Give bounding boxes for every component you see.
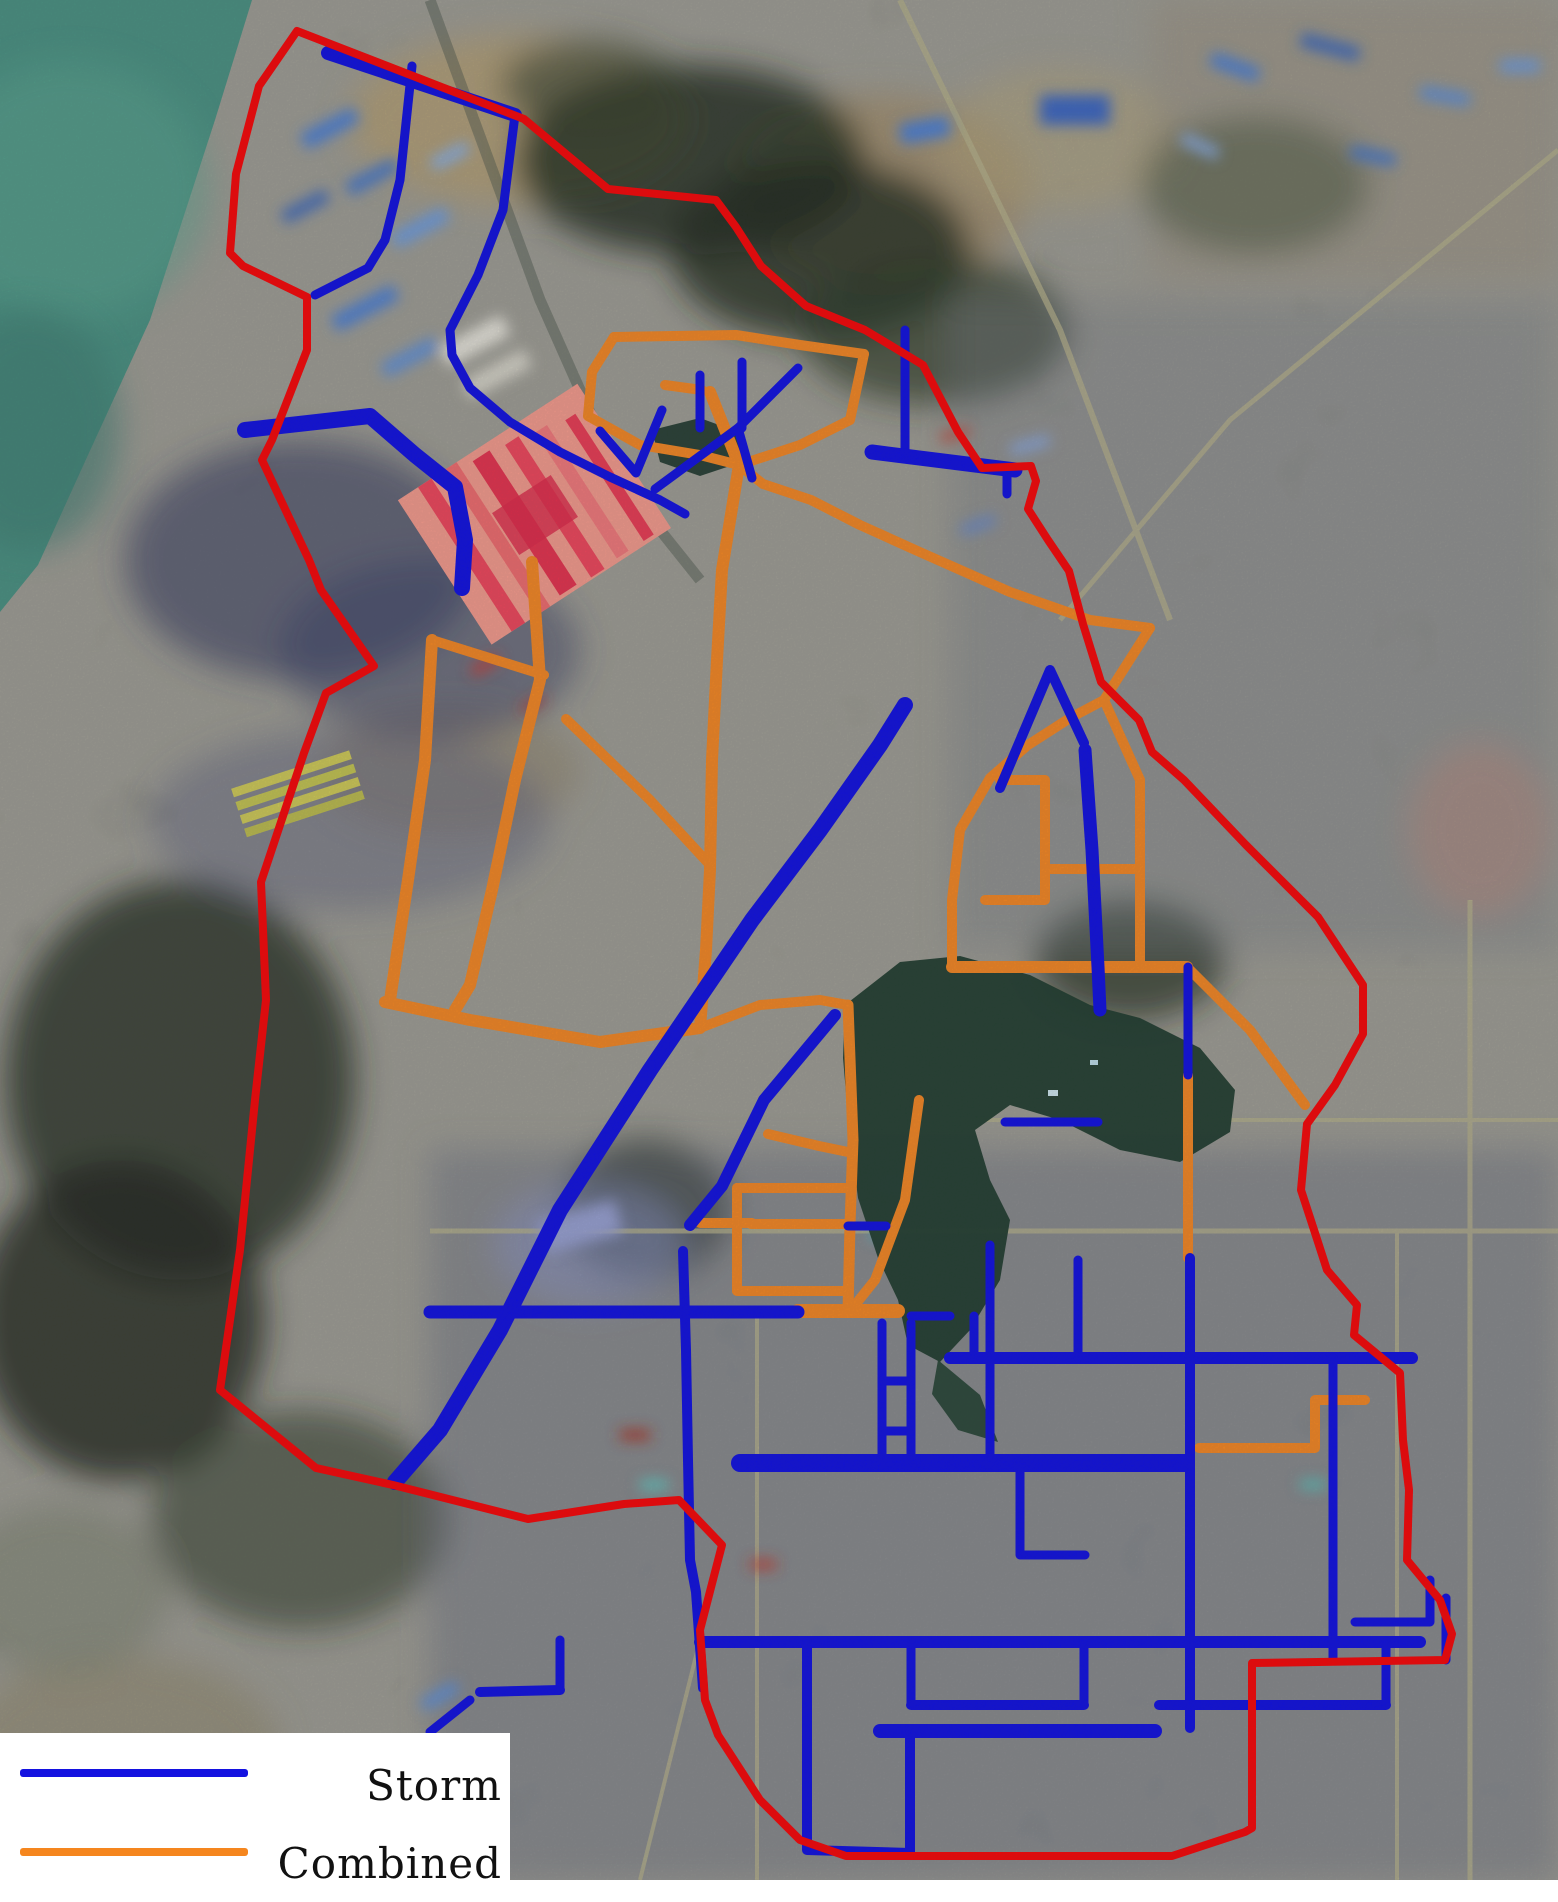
map-canvas[interactable] bbox=[0, 0, 1558, 1902]
storm-line-swatch bbox=[20, 1769, 248, 1777]
grain-texture bbox=[0, 0, 1558, 1880]
legend-box: Storm Combined bbox=[0, 1733, 510, 1902]
storm-legend-label: Storm bbox=[250, 1762, 508, 1810]
combined-legend-label: Combined bbox=[250, 1840, 508, 1888]
combined-line-swatch bbox=[20, 1848, 248, 1856]
figure-page: Storm Combined bbox=[0, 0, 1558, 1902]
